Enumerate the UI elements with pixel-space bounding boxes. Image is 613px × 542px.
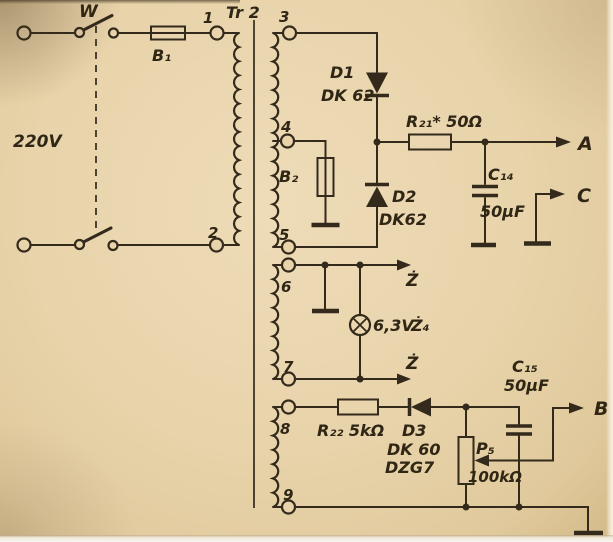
schematic-canvas: W 220V B₁ Tr 2 1 2 3 4 5 6 7 8 9 D1 DK 6…	[0, 0, 613, 542]
wires	[31, 33, 588, 531]
junction-p5-top	[463, 404, 470, 411]
arrow-output-b	[569, 403, 584, 414]
page-edge-right	[606, 0, 613, 542]
lamp-z4	[350, 315, 370, 335]
arrow-heater-top	[397, 260, 411, 271]
transformer-label: Tr 2	[226, 3, 260, 22]
primary-winding	[234, 33, 239, 245]
switch-contact-bottom-right	[109, 241, 118, 250]
terminal-2-label: 2	[208, 224, 218, 242]
mains-voltage-label: 220V	[13, 132, 63, 152]
arrow-output-c	[550, 189, 565, 200]
capacitor-c15-value: 50µF	[504, 376, 549, 395]
switch-contact-top-right	[109, 29, 118, 38]
transformer-terminal-3	[283, 27, 296, 40]
terminal-8-label: 8	[280, 420, 290, 438]
junction-lamp-bottom	[357, 376, 364, 383]
capacitors	[472, 187, 532, 435]
diode-d3-name: D3	[402, 421, 426, 440]
mains-terminal-top	[18, 27, 31, 40]
junction-c15-bottom	[516, 504, 523, 511]
arrow-output-a	[556, 137, 571, 148]
transformer-terminal-1	[211, 27, 224, 40]
transformer-terminal-8	[282, 401, 295, 414]
diode-d3-symbol	[411, 398, 431, 417]
arrow-heater-bottom	[397, 374, 411, 385]
transformer-terminal-6	[282, 259, 295, 272]
junction-lamp-top	[357, 262, 364, 269]
switch-blade-bottom	[84, 228, 112, 242]
lamp-rating-label: 6,3V	[373, 316, 415, 335]
junction-p5-bottom	[463, 504, 470, 511]
capacitor-c14-value: 50µF	[480, 202, 525, 221]
diode-d2-type: DK62	[379, 210, 427, 229]
secondary-winding-8-9	[273, 407, 278, 507]
ground-symbols	[312, 244, 603, 534]
resistor-r22-symbol	[338, 400, 378, 415]
mains-terminal-bottom	[18, 239, 31, 252]
diode-d1-name: D1	[330, 63, 354, 82]
page-edge-bottom	[0, 535, 613, 542]
terminal-1-label: 1	[203, 9, 213, 27]
page-edge-top	[0, 0, 240, 4]
lamp-cross	[353, 318, 367, 332]
diode-d3-type1: DK 60	[387, 440, 441, 459]
terminal-9-label: 9	[283, 486, 293, 504]
wire-output-c	[536, 194, 551, 241]
potentiometer-p5-value: 100kΩ	[468, 468, 522, 486]
terminal-3-label: 3	[279, 8, 289, 26]
diode-d2-symbol	[366, 187, 388, 208]
capacitor-c15-name: C₁₅	[512, 357, 538, 376]
transformer-terminal-4	[281, 135, 294, 148]
terminal-4-label: 4	[280, 118, 291, 136]
diode-d1-type: DK 62	[321, 86, 375, 105]
wire-terminal9	[273, 507, 588, 531]
junction-heater-gnd	[322, 262, 329, 269]
resistor-r21-symbol	[409, 135, 451, 150]
resistor-r22-label: R₂₂ 5kΩ	[317, 421, 384, 440]
fuse-b2-label: B₂	[279, 167, 298, 186]
resistor-r21-label: R₂₁* 50Ω	[406, 112, 482, 131]
junction-c14	[482, 139, 489, 146]
diode-d3-type2: DZG7	[385, 458, 435, 477]
diode-d2-name: D2	[392, 187, 416, 206]
switch-contact-top-left	[75, 28, 84, 37]
potentiometer-p5-name: P₅	[476, 439, 495, 458]
scanned-schematic-page: W 220V B₁ Tr 2 1 2 3 4 5 6 7 8 9 D1 DK 6…	[0, 0, 613, 542]
terminal-5-label: 5	[279, 226, 289, 244]
terminal-7-label: 7	[283, 358, 294, 376]
heater-top-label: Ż	[405, 269, 419, 291]
junction-rectifier	[374, 139, 381, 146]
secondary-winding-6-7	[273, 265, 278, 379]
lamp-name-label: Ż₄	[410, 316, 430, 335]
capacitor-c14-name: C₁₄	[488, 165, 514, 184]
fuse-b1-label: B₁	[152, 46, 171, 65]
heater-bottom-label: Ż	[405, 352, 419, 374]
switch-w	[84, 16, 113, 243]
terminal-6-label: 6	[281, 278, 291, 296]
output-c-label: C	[577, 185, 591, 207]
switch-label: W	[79, 2, 99, 22]
output-a-label: A	[576, 133, 593, 155]
transformer-tr2	[234, 20, 278, 508]
switch-contact-bottom-left	[75, 240, 84, 249]
